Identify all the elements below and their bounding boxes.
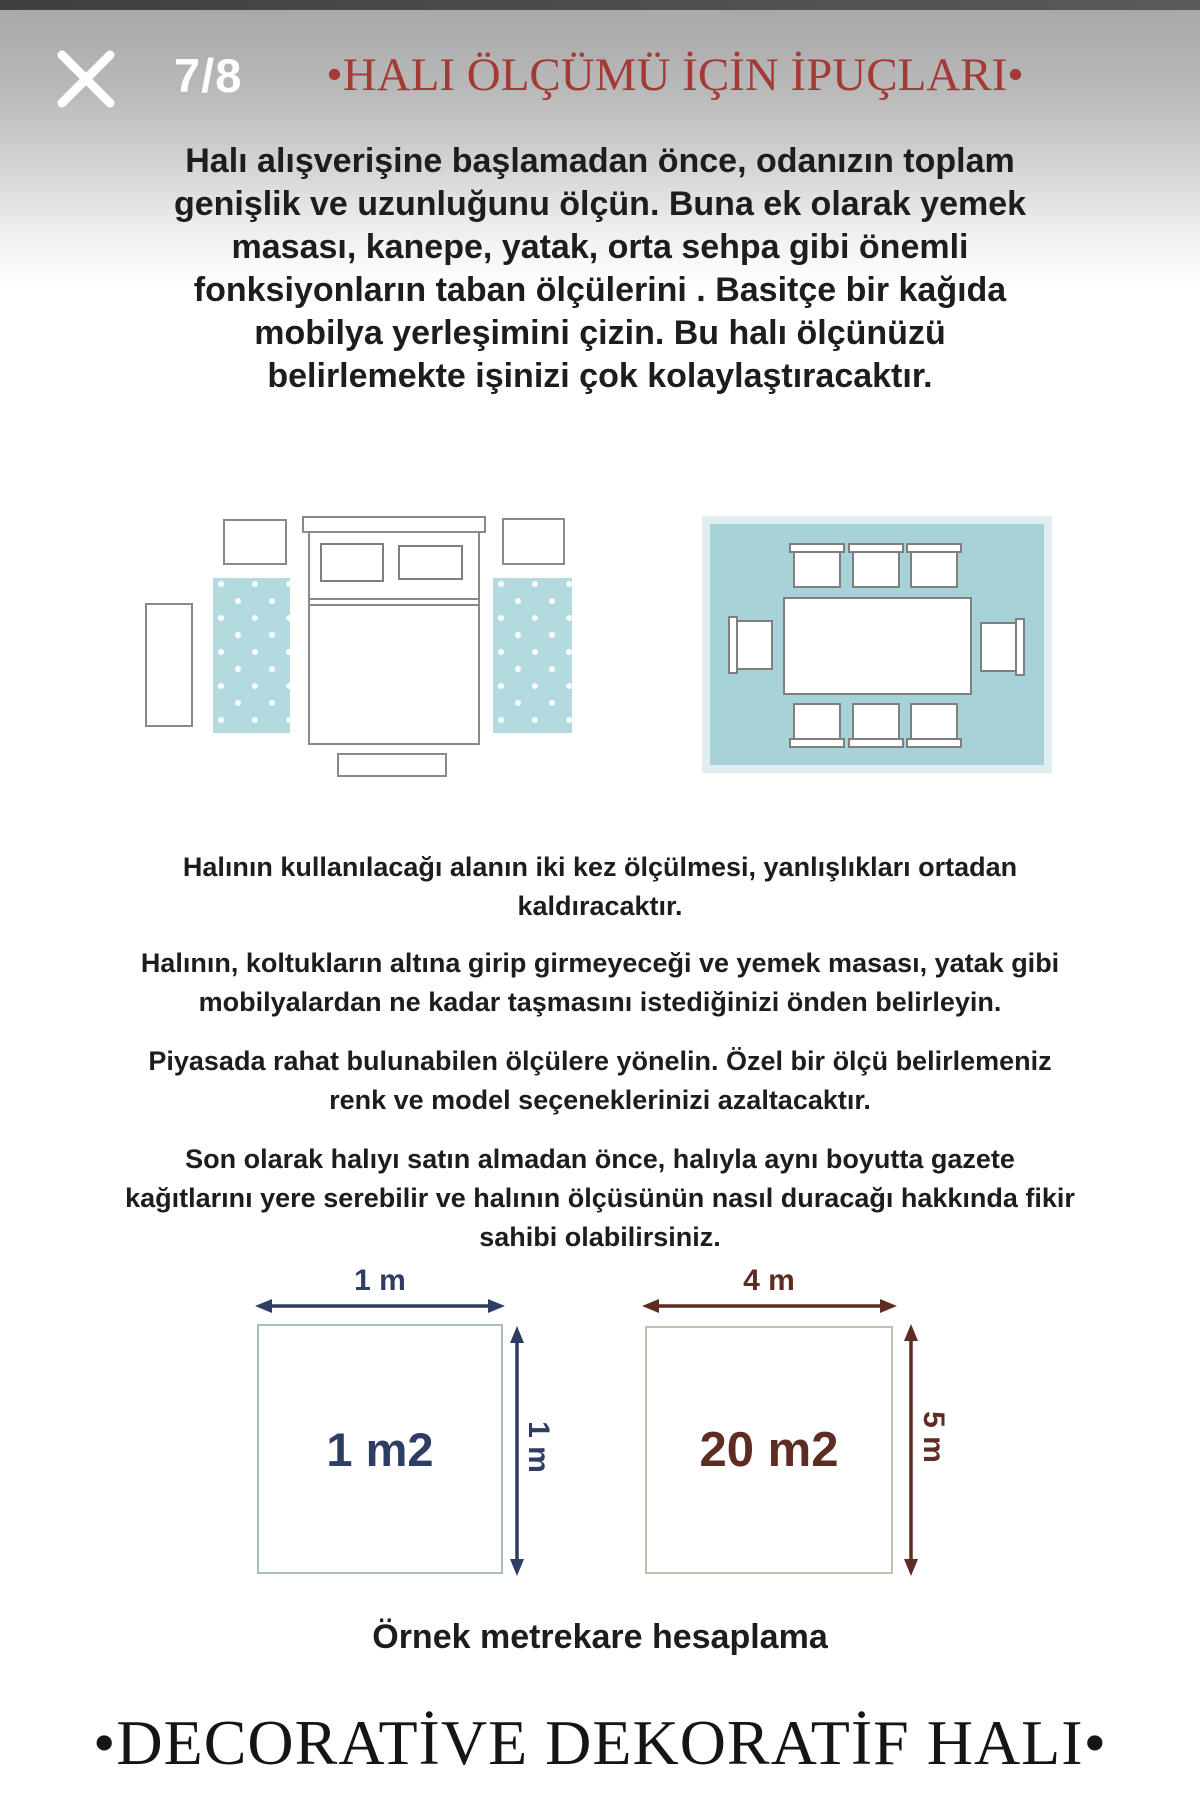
square-20m2: 20 m2 xyxy=(645,1326,893,1574)
chair-back xyxy=(1015,618,1025,676)
page-title: •HALI ÖLÇÜMÜ İÇİN İPUÇLARI• xyxy=(0,48,1200,102)
square-1m2: 1 m2 xyxy=(257,1324,503,1574)
example-square-small: 1 m 1 m2 1 m xyxy=(250,1262,580,1592)
dining-diagram xyxy=(702,516,1052,773)
tip-line: Halının, koltukların altına girip girmey… xyxy=(60,944,1140,983)
height-label-small: 1 m xyxy=(521,1421,555,1473)
dining-chair-top-1 xyxy=(793,551,841,588)
intro-line: genişlik ve uzunluğunu ölçün. Buna ek ol… xyxy=(60,183,1140,226)
chair-back xyxy=(906,543,962,553)
runner-rug-right xyxy=(493,578,572,733)
dining-chair-right xyxy=(980,622,1017,672)
chair-back xyxy=(789,738,845,748)
brand-footer: •DECORATİVE DEKORATİF HALI• xyxy=(0,1706,1200,1780)
dining-table xyxy=(783,597,972,695)
tip-paragraph-2: Halının, koltukların altına girip girmey… xyxy=(60,944,1140,1022)
example-square-large: 4 m 20 m2 5 m xyxy=(635,1262,965,1592)
tip-line: Halının kullanılacağı alanın iki kez ölç… xyxy=(60,848,1140,887)
width-label-small: 1 m xyxy=(250,1264,510,1298)
tip-line: kağıtlarını yere serebilir ve halının öl… xyxy=(60,1179,1140,1218)
example-caption: Örnek metrekare hesaplama xyxy=(0,1618,1200,1657)
dining-chair-top-2 xyxy=(852,551,900,588)
intro-line: Halı alışverişine başlamadan önce, odanı… xyxy=(60,140,1140,183)
bed-sheet-line xyxy=(308,598,480,606)
chair-back xyxy=(728,616,738,674)
intro-paragraph: Halı alışverişine başlamadan önce, odanı… xyxy=(60,140,1140,398)
side-dresser xyxy=(145,603,193,727)
tip-line: Son olarak halıyı satın almadan önce, ha… xyxy=(60,1140,1140,1179)
intro-line: masası, kanepe, yatak, orta sehpa gibi ö… xyxy=(60,226,1140,269)
width-arrow-small xyxy=(255,1297,505,1315)
tip-line: renk ve model seçeneklerinizi azaltacakt… xyxy=(60,1081,1140,1120)
pillow-right xyxy=(398,545,463,580)
dining-chair-top-3 xyxy=(910,551,958,588)
chair-back xyxy=(789,543,845,553)
tip-paragraph-1: Halının kullanılacağı alanın iki kez ölç… xyxy=(60,848,1140,926)
chair-back xyxy=(848,738,904,748)
area-label-large: 20 m2 xyxy=(647,1328,891,1572)
pillow-left xyxy=(320,543,384,582)
bed xyxy=(308,531,480,745)
chair-back xyxy=(906,738,962,748)
nightstand-left xyxy=(223,519,287,565)
intro-line: belirlemekte işinizi çok kolaylaştıracak… xyxy=(60,355,1140,398)
width-label-large: 4 m xyxy=(640,1264,898,1298)
chair-back xyxy=(848,543,904,553)
tip-line: mobilyalardan ne kadar taşmasını istediğ… xyxy=(60,983,1140,1022)
tip-paragraph-4: Son olarak halıyı satın almadan önce, ha… xyxy=(60,1140,1140,1257)
tip-line: kaldıracaktır. xyxy=(60,887,1140,926)
height-label-large: 5 m xyxy=(916,1411,950,1463)
tip-line: sahibi olabilirsiniz. xyxy=(60,1218,1140,1257)
dining-chair-left xyxy=(736,620,773,670)
runner-rug-left xyxy=(213,578,290,733)
dining-chair-bottom-2 xyxy=(852,703,900,740)
bedroom-diagram xyxy=(145,516,572,778)
tip-paragraph-3: Piyasada rahat bulunabilen ölçülere yöne… xyxy=(60,1042,1140,1120)
top-bar xyxy=(0,0,1200,10)
intro-line: mobilya yerleşimini çizin. Bu halı ölçün… xyxy=(60,312,1140,355)
dining-chair-bottom-1 xyxy=(793,703,841,740)
intro-line: fonksiyonların taban ölçülerini . Basitç… xyxy=(60,269,1140,312)
foot-bench xyxy=(337,753,447,777)
area-label-small: 1 m2 xyxy=(259,1326,501,1572)
dining-chair-bottom-3 xyxy=(910,703,958,740)
carpet-tips-overlay: 7/8 •HALI ÖLÇÜMÜ İÇİN İPUÇLARI• Halı alı… xyxy=(0,0,1200,1800)
width-arrow-large xyxy=(642,1297,897,1315)
tip-line: Piyasada rahat bulunabilen ölçülere yöne… xyxy=(60,1042,1140,1081)
nightstand-right xyxy=(502,518,565,565)
